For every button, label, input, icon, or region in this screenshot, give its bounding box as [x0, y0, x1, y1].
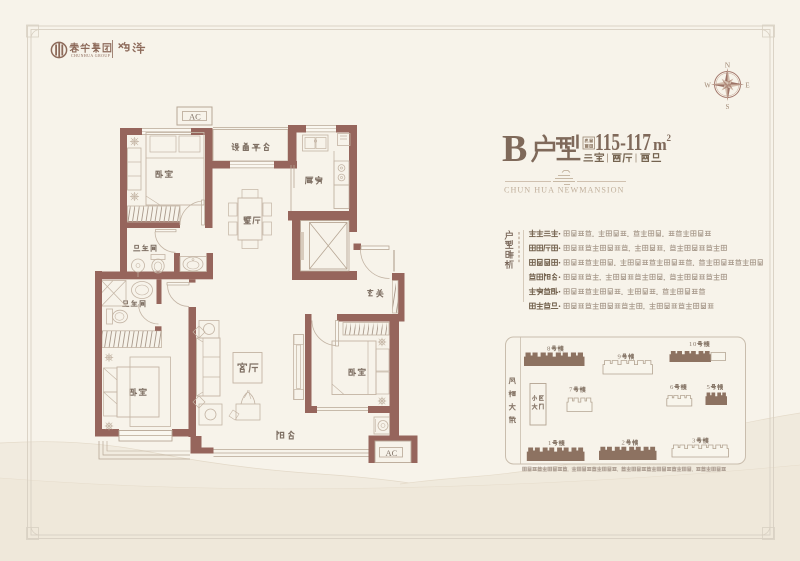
svg-text:m: m [653, 135, 667, 154]
svg-text:2: 2 [667, 133, 672, 143]
svg-text:1: 1 [548, 440, 551, 447]
svg-text:CHUN HUA NEWMANSION: CHUN HUA NEWMANSION [504, 186, 624, 195]
svg-text:B: B [502, 128, 527, 170]
svg-text:115-117: 115-117 [595, 129, 651, 156]
svg-text:W: W [704, 81, 711, 89]
svg-text:1: 1 [689, 341, 692, 348]
svg-text:E: E [745, 81, 749, 89]
svg-text:CHUNHUA GROUP: CHUNHUA GROUP [71, 54, 111, 58]
svg-text:AC: AC [386, 448, 398, 458]
svg-text:N: N [725, 61, 731, 70]
svg-text:AC: AC [189, 112, 201, 122]
svg-text:S: S [726, 103, 730, 111]
svg-text:2: 2 [622, 440, 625, 447]
